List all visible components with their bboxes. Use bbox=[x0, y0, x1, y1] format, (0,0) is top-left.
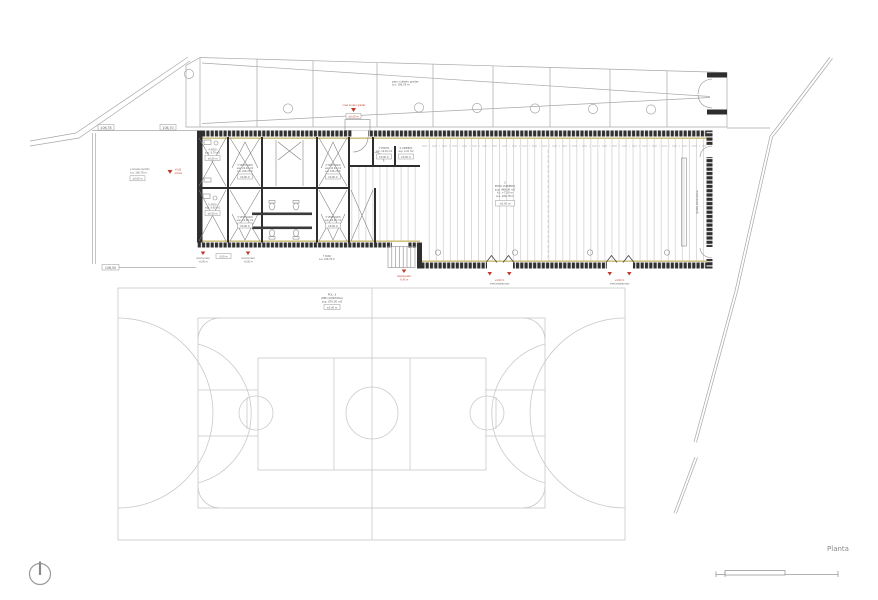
strip-note-line2: a.a. 106,78 m bbox=[392, 83, 410, 87]
paso-ref: a.a. 106,78 m bbox=[319, 258, 336, 261]
wc-icon bbox=[269, 230, 274, 237]
wc-icon bbox=[293, 230, 298, 237]
svg-text:sup. 4,10 m2: sup. 4,10 m2 bbox=[398, 150, 414, 153]
access-note-2: a.a. 106,78 m bbox=[130, 171, 147, 174]
wc-icon bbox=[214, 141, 218, 145]
svg-text:sup. 22,40 m2: sup. 22,40 m2 bbox=[325, 219, 342, 222]
svg-text:±0,00 m: ±0,00 m bbox=[328, 176, 339, 179]
door-swing-icon bbox=[353, 137, 368, 152]
room-label-aseo1: 4 ASEO sup. 8,70 m2 ±0,00 m bbox=[205, 149, 221, 161]
hall-label: 2 PISTA CUBIERTA sup. 968,00 m2 h.l. +7,… bbox=[495, 181, 516, 207]
svg-text:sup. 9,60 m2: sup. 9,60 m2 bbox=[205, 206, 221, 209]
svg-text:±0,00 m: ±0,00 m bbox=[401, 156, 412, 159]
sink-icon bbox=[203, 194, 210, 199]
access-red-2: acceso bbox=[175, 172, 183, 175]
room-label-vest2: 3 VESTUARIO sup. 22,40 m2 a.a. 106,78 m … bbox=[325, 164, 342, 179]
site-elevation-tag-a: 106,78 bbox=[98, 125, 114, 131]
scale-bar bbox=[716, 571, 838, 578]
free-throw-circle bbox=[239, 396, 273, 430]
building: grada telescopica 2 PISTA CUBIERTA sup. … bbox=[197, 131, 713, 282]
site-elevation-tag-c: 106,50 bbox=[102, 265, 119, 271]
side-court-arc bbox=[118, 318, 213, 508]
level-marker-icon bbox=[168, 170, 173, 174]
svg-text:sup. 22,40 m2: sup. 22,40 m2 bbox=[237, 219, 254, 222]
level-marker-icon bbox=[488, 272, 493, 276]
three-point-arc bbox=[492, 344, 545, 483]
bench bbox=[252, 227, 312, 230]
site-elevation-b: 106,70 bbox=[162, 126, 173, 130]
site-elevation-tag-b: 106,70 bbox=[160, 125, 176, 131]
svg-text:±0,00 m: ±0,00 m bbox=[240, 176, 251, 179]
south-wall-markers: nivel acceso +0,00 m 0,00 m nivel acceso… bbox=[196, 252, 336, 264]
svg-text:±0,00 m: ±0,00 m bbox=[240, 225, 251, 228]
svg-text:±0,00 m: ±0,00 m bbox=[327, 306, 338, 309]
plan-drawing: 106,78 106,70 106,50 bbox=[0, 0, 878, 600]
svg-text:+0,00 m: +0,00 m bbox=[198, 261, 208, 264]
svg-text:POL.-2: POL.-2 bbox=[328, 293, 337, 297]
bleacher-label: grada telescopica bbox=[695, 190, 699, 213]
level-marker-icon bbox=[507, 272, 512, 276]
sheet-title: Planta bbox=[827, 545, 849, 553]
level-marker-icon bbox=[246, 252, 251, 256]
level-marker-icon bbox=[627, 272, 632, 276]
svg-text:sup. 870,00 m2: sup. 870,00 m2 bbox=[322, 299, 343, 303]
site-elevation-c: 106,50 bbox=[105, 266, 116, 270]
room-label-vest1: 3 VESTUARIO sup. 22,40 m2 a.a. 106,78 m … bbox=[237, 164, 254, 179]
svg-text:+0,00 m: +0,00 m bbox=[243, 261, 253, 264]
wc-icon bbox=[213, 196, 217, 200]
level-marker-icon bbox=[402, 270, 407, 274]
hall-height: h.l. +7,50 m bbox=[497, 191, 514, 195]
strip-level-box: ±0,00 m bbox=[348, 115, 359, 118]
grandstand-strip: paso cubierto gradas a.a. 106,78 m nivel… bbox=[184, 58, 727, 131]
court-label: POL.-2 (RED GUNITADA) sup. 870,00 m2 ±0,… bbox=[321, 293, 343, 310]
svg-text:±0,00 m: ±0,00 m bbox=[207, 157, 218, 160]
plan-sheet: 106,78 106,70 106,50 bbox=[0, 0, 878, 600]
svg-text:0,00 m: 0,00 m bbox=[219, 255, 228, 258]
sports-field: POL.-2 (RED GUNITADA) sup. 870,00 m2 ±0,… bbox=[118, 288, 625, 540]
exit-stair: bajada pista -0,45 m bbox=[388, 247, 415, 282]
hall-ref: a.a. 106,78 m bbox=[496, 194, 515, 198]
level-marker-icon bbox=[201, 252, 206, 256]
stair-level: -0,45 m bbox=[400, 278, 409, 281]
entrance-porch bbox=[345, 120, 370, 131]
svg-text:(RED GUNITADA): (RED GUNITADA) bbox=[321, 296, 343, 300]
svg-text:nivel pista/acceso: nivel pista/acceso bbox=[610, 282, 630, 285]
room-label-limpieza: 6 LIMPIEZA sup. 4,10 m2 ±0,00 m bbox=[398, 147, 414, 159]
svg-text:±0,00 m: ±0,00 m bbox=[379, 156, 390, 159]
hall-area: sup. 968,00 m2 bbox=[495, 187, 516, 191]
free-throw-circle bbox=[470, 396, 504, 430]
svg-text:nivel pista/acceso: nivel pista/acceso bbox=[490, 282, 510, 285]
strip-level-marker: nivel acceso gradas ±0,00 m bbox=[343, 104, 367, 119]
room-label-vest4: 3 VESTUARIO sup. 22,40 m2 ±0,00 m bbox=[325, 216, 342, 228]
corridor-decking bbox=[349, 167, 417, 241]
north-arrow bbox=[30, 562, 51, 585]
svg-text:sup. 8,70 m2: sup. 8,70 m2 bbox=[205, 151, 221, 154]
svg-text:a.a. 106,78 m: a.a. 106,78 m bbox=[237, 170, 254, 173]
three-point-arc bbox=[198, 344, 251, 483]
hall-door-markers: +0,00 m nivel pista/acceso +0,00 m nivel… bbox=[488, 272, 632, 285]
sink-icon bbox=[204, 140, 211, 145]
level-marker-icon bbox=[608, 272, 613, 276]
strip-access-note: paso cubierto gradas a.a. 106,78 m bbox=[392, 80, 419, 87]
bench bbox=[252, 213, 312, 216]
svg-text:a.a. 106,78 m: a.a. 106,78 m bbox=[325, 170, 342, 173]
level-marker-icon bbox=[351, 108, 356, 112]
hall-level: ±0,00 m bbox=[500, 202, 511, 206]
site-elevation-a: 106,78 bbox=[100, 126, 111, 130]
strip-end-doors bbox=[698, 73, 727, 115]
wc-icon bbox=[269, 203, 274, 210]
sink-icon bbox=[204, 178, 211, 182]
access-level: ±0,00 m bbox=[132, 178, 143, 181]
access-annotation: y acceso recinto a.a. 106,78 m ±0,00 m +… bbox=[130, 168, 183, 181]
hall-name: PISTA CUBIERTA bbox=[495, 184, 516, 188]
strip-level-text: nivel acceso gradas bbox=[343, 104, 367, 107]
hall-decking bbox=[424, 138, 705, 262]
room-label-aseo2: 5 ASEO sup. 9,60 m2 ±0,00 m bbox=[205, 204, 221, 216]
room-label-vest3: 3 VESTUARIO sup. 22,40 m2 ±0,00 m bbox=[237, 216, 254, 228]
room-diagonals bbox=[199, 138, 373, 241]
svg-text:±0,00 m: ±0,00 m bbox=[207, 212, 218, 215]
svg-text:±0,00 m: ±0,00 m bbox=[328, 225, 339, 228]
side-court-arc bbox=[530, 318, 625, 508]
svg-text:sup. 14,20 m2: sup. 14,20 m2 bbox=[376, 150, 393, 153]
wc-icon bbox=[293, 203, 298, 210]
site-boundaries: 106,78 106,70 106,50 bbox=[30, 57, 833, 514]
strip-columns bbox=[184, 69, 655, 114]
